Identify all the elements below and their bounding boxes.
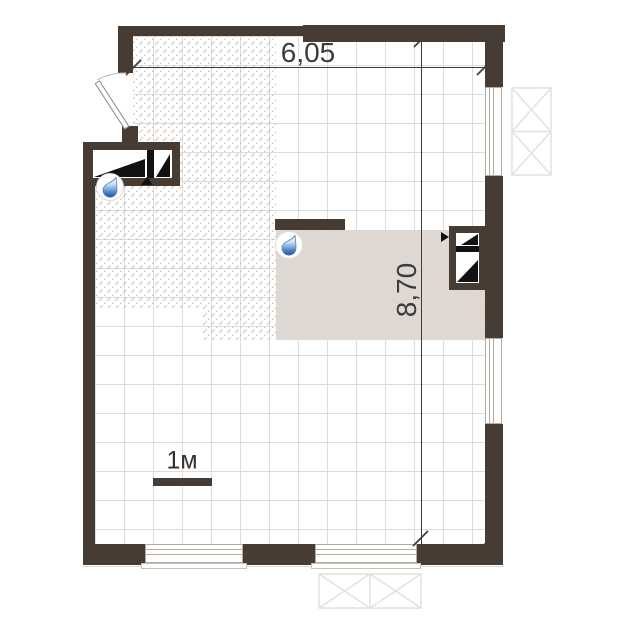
tick-height-top [414,32,429,47]
tick-height-bottom [413,531,428,546]
vent-wedge-left-small [156,154,170,177]
vent-wedge-right-top [461,234,478,245]
floor-plan-canvas: { "plan": { "kind": "apartment-floor-pla… [0,0,632,632]
water-drop-icon-2 [276,232,303,259]
water-drop-icon-1 [97,174,124,201]
direction-arrow-icon-left [141,177,153,185]
vent-divider-left [147,150,154,178]
balcony-bottom [319,574,421,608]
door-swing-arc [97,73,126,80]
tick-width-left [126,60,141,75]
dimension-ticks [126,32,500,552]
tick-width-right [477,60,492,75]
direction-arrow-icon-right [441,232,449,242]
corner-mark [477,529,500,552]
vent-wedge-left-big [94,159,145,177]
vent-divider-right [456,246,479,252]
vent-wedge-right-bottom [457,260,478,282]
plan-details [0,0,632,632]
vent-shaft-right-wedges [456,234,479,282]
balcony-right [512,88,551,175]
